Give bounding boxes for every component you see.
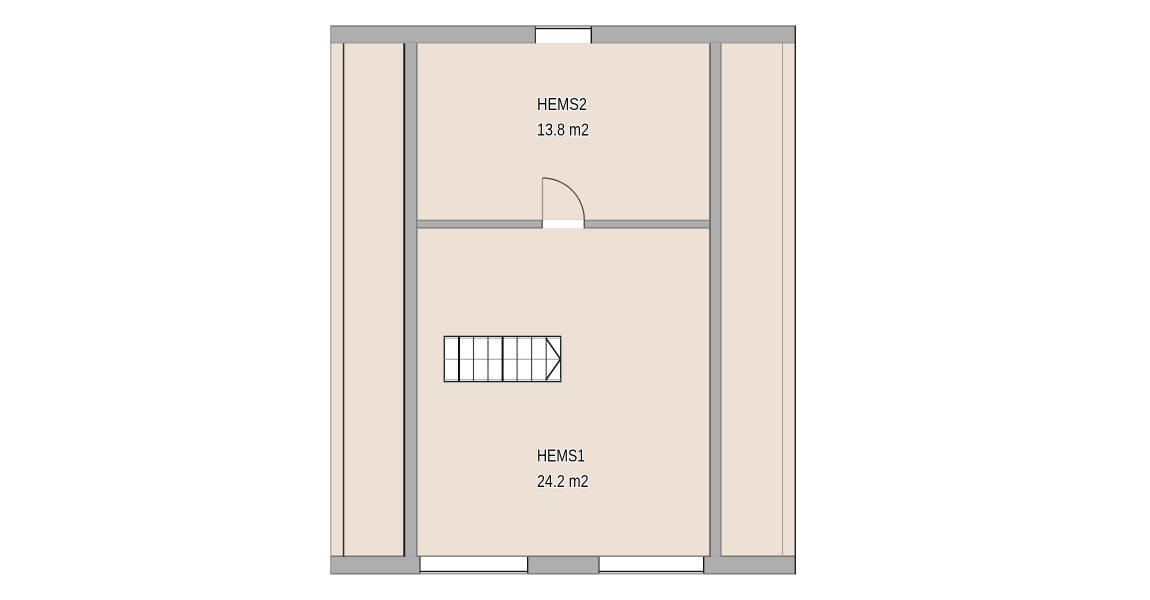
svg-text:13.8 m2: 13.8 m2 bbox=[537, 120, 589, 140]
svg-text:HEMS1: HEMS1 bbox=[537, 445, 585, 465]
svg-text:24.2 m2: 24.2 m2 bbox=[537, 471, 589, 491]
svg-text:HEMS2: HEMS2 bbox=[537, 94, 587, 114]
